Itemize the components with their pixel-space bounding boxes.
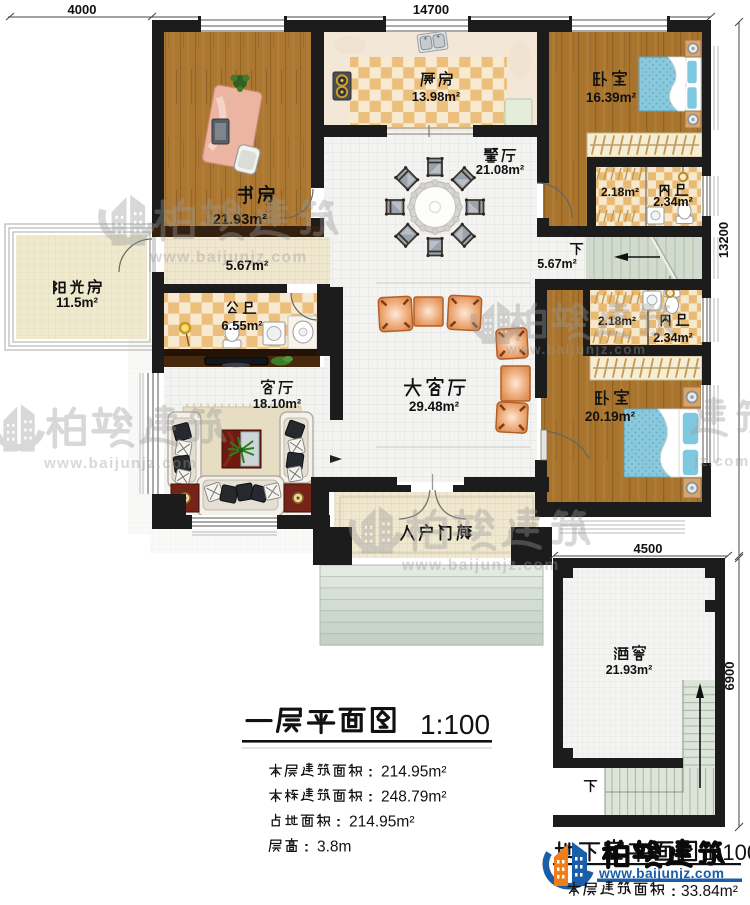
svg-text:16.39m²: 16.39m² <box>586 90 637 105</box>
svg-text:www.baijunjz.com: www.baijunjz.com <box>149 249 308 266</box>
svg-text:4500: 4500 <box>634 541 663 556</box>
svg-text:www.baijunjz.com: www.baijunjz.com <box>505 342 647 357</box>
svg-text:11.5m²: 11.5m² <box>56 295 99 310</box>
svg-text::: : <box>368 764 373 781</box>
svg-text:21.08m²: 21.08m² <box>476 162 525 177</box>
svg-text:jz.com: jz.com <box>693 453 750 470</box>
svg-text::: : <box>304 839 309 856</box>
svg-text:214.95m²: 214.95m² <box>381 764 446 781</box>
svg-text:2.18m²: 2.18m² <box>601 185 639 199</box>
svg-text:1:100: 1:100 <box>420 709 490 740</box>
svg-text:4000: 4000 <box>68 2 97 17</box>
svg-text:18.10m²: 18.10m² <box>253 396 302 411</box>
svg-text:13.98m²: 13.98m² <box>412 89 461 104</box>
svg-text:www.baijunjz.com: www.baijunjz.com <box>43 455 197 472</box>
svg-text:29.48m²: 29.48m² <box>409 399 460 414</box>
svg-text:2.34m²: 2.34m² <box>653 195 693 209</box>
svg-text:21.93m²: 21.93m² <box>606 663 653 677</box>
svg-text::: : <box>671 883 676 900</box>
svg-text:3.8m: 3.8m <box>317 839 351 856</box>
svg-text:248.79m²: 248.79m² <box>381 789 446 806</box>
svg-text:14700: 14700 <box>413 2 449 17</box>
svg-text:6.55m²: 6.55m² <box>221 318 263 333</box>
svg-text:5.67m²: 5.67m² <box>537 257 577 271</box>
svg-text::: : <box>368 789 373 806</box>
svg-text:33.84m²: 33.84m² <box>681 883 738 900</box>
svg-text:20.19m²: 20.19m² <box>585 409 636 424</box>
svg-text:214.95m²: 214.95m² <box>349 814 414 831</box>
svg-text::: : <box>336 814 341 831</box>
svg-text:www.baijunjz.com: www.baijunjz.com <box>401 557 560 574</box>
